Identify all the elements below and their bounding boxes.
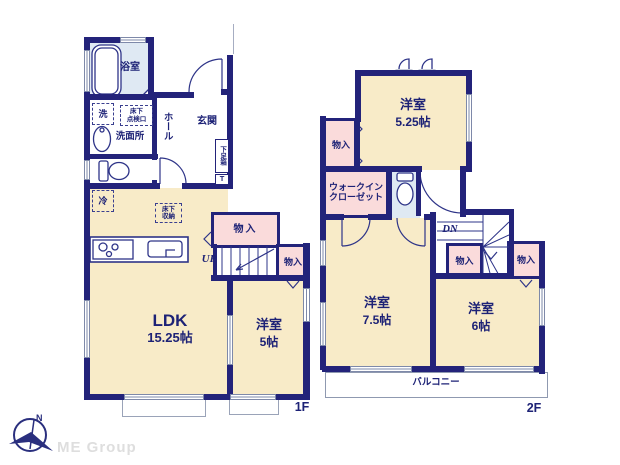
logo-text: ME Group bbox=[57, 439, 137, 456]
window-marker bbox=[303, 288, 310, 322]
fridge-space: 冷 bbox=[92, 190, 114, 212]
window-marker bbox=[539, 288, 545, 326]
window-marker bbox=[84, 160, 90, 180]
wall bbox=[430, 212, 436, 370]
shoe-box-label: 下足箱 bbox=[218, 146, 225, 166]
wall bbox=[355, 70, 472, 76]
floor-1f-label: 1F bbox=[288, 400, 316, 414]
bedroom2-2f-size-label: 7.5帖 bbox=[346, 314, 408, 327]
wall bbox=[322, 166, 422, 172]
wall bbox=[460, 209, 514, 215]
compass-n-label: N bbox=[36, 413, 43, 423]
washer-label: 洗 bbox=[98, 109, 107, 119]
compass-north-icon: N bbox=[9, 413, 53, 451]
wall bbox=[368, 214, 392, 220]
wall bbox=[416, 168, 421, 216]
stairs-up-label: UP bbox=[197, 253, 221, 265]
window-marker bbox=[124, 394, 204, 400]
bedroom1-2f-label: 洋室 bbox=[382, 98, 444, 113]
walk-in-closet-label: ウォークインクローゼット bbox=[329, 182, 383, 202]
wall bbox=[211, 275, 310, 281]
bathroom-label: 浴室 bbox=[108, 62, 152, 73]
closet-label: 物入 bbox=[455, 256, 473, 266]
ldk-size-label: 15.25帖 bbox=[128, 331, 212, 346]
balcony-label: バルコニー bbox=[400, 378, 472, 389]
underfloor-hatch: 床下点検口 bbox=[120, 105, 153, 126]
underfloor-storage-label: 床下収納 bbox=[162, 206, 175, 221]
wall bbox=[322, 214, 344, 220]
bedroom-1f-label: 洋室 bbox=[238, 318, 300, 333]
shoe-box-t-label: T bbox=[220, 175, 225, 183]
wall bbox=[436, 273, 514, 279]
wall bbox=[221, 89, 228, 95]
floorplan-canvas: 物入 物入 物入 ウォークインクローゼット 物入 物入 bbox=[0, 0, 620, 465]
stairs-down-label: DN bbox=[438, 224, 462, 236]
window-marker bbox=[230, 394, 276, 400]
fridge-label: 冷 bbox=[98, 196, 107, 206]
shoe-box: 下足箱 bbox=[215, 139, 229, 173]
window-marker bbox=[320, 240, 326, 266]
ldk-label: LDK bbox=[128, 311, 212, 330]
closet-1f-a: 物入 bbox=[211, 212, 280, 248]
washer-space: 洗 bbox=[92, 103, 114, 125]
closet-label: 物入 bbox=[517, 255, 535, 265]
terrace-step bbox=[229, 400, 279, 415]
closet-label: 物入 bbox=[284, 257, 302, 267]
porch-area bbox=[152, 22, 233, 92]
sliding-door-marker bbox=[227, 315, 233, 365]
bedroom1-2f-size-label: 5.25帖 bbox=[382, 116, 444, 129]
bedroom2-2f-label: 洋室 bbox=[346, 296, 408, 311]
window-marker bbox=[120, 37, 146, 43]
bedroom3-2f-size-label: 6帖 bbox=[450, 320, 512, 333]
wall bbox=[354, 118, 360, 168]
closet-label: 物入 bbox=[332, 140, 350, 150]
entrance-label: 玄関 bbox=[190, 116, 224, 127]
closet-label: 物入 bbox=[234, 224, 258, 235]
window-marker bbox=[84, 50, 90, 92]
wall bbox=[386, 168, 391, 216]
window-marker bbox=[84, 300, 90, 358]
wall bbox=[84, 183, 160, 189]
underfloor-hatch-label: 床下点検口 bbox=[127, 108, 147, 123]
window-marker bbox=[320, 302, 326, 346]
hall-label: ホール bbox=[161, 106, 172, 146]
terrace-step bbox=[122, 400, 206, 417]
window-marker bbox=[466, 94, 472, 142]
washroom-label: 洗面所 bbox=[110, 132, 150, 143]
window-marker bbox=[350, 366, 412, 372]
wall bbox=[509, 209, 514, 277]
bedroom2-area-2f bbox=[322, 218, 436, 370]
walk-in-closet: ウォークインクローゼット bbox=[320, 166, 392, 218]
wall bbox=[84, 154, 158, 159]
floor-2f-label: 2F bbox=[520, 401, 548, 415]
underfloor-storage: 床下収納 bbox=[155, 203, 182, 223]
wall bbox=[152, 94, 157, 160]
wall bbox=[355, 70, 361, 122]
shoe-box-t: T bbox=[215, 174, 229, 185]
bedroom3-2f-label: 洋室 bbox=[450, 302, 512, 317]
window-marker bbox=[464, 366, 534, 372]
bedroom-1f-size-label: 5帖 bbox=[238, 336, 300, 349]
wall bbox=[84, 94, 154, 100]
